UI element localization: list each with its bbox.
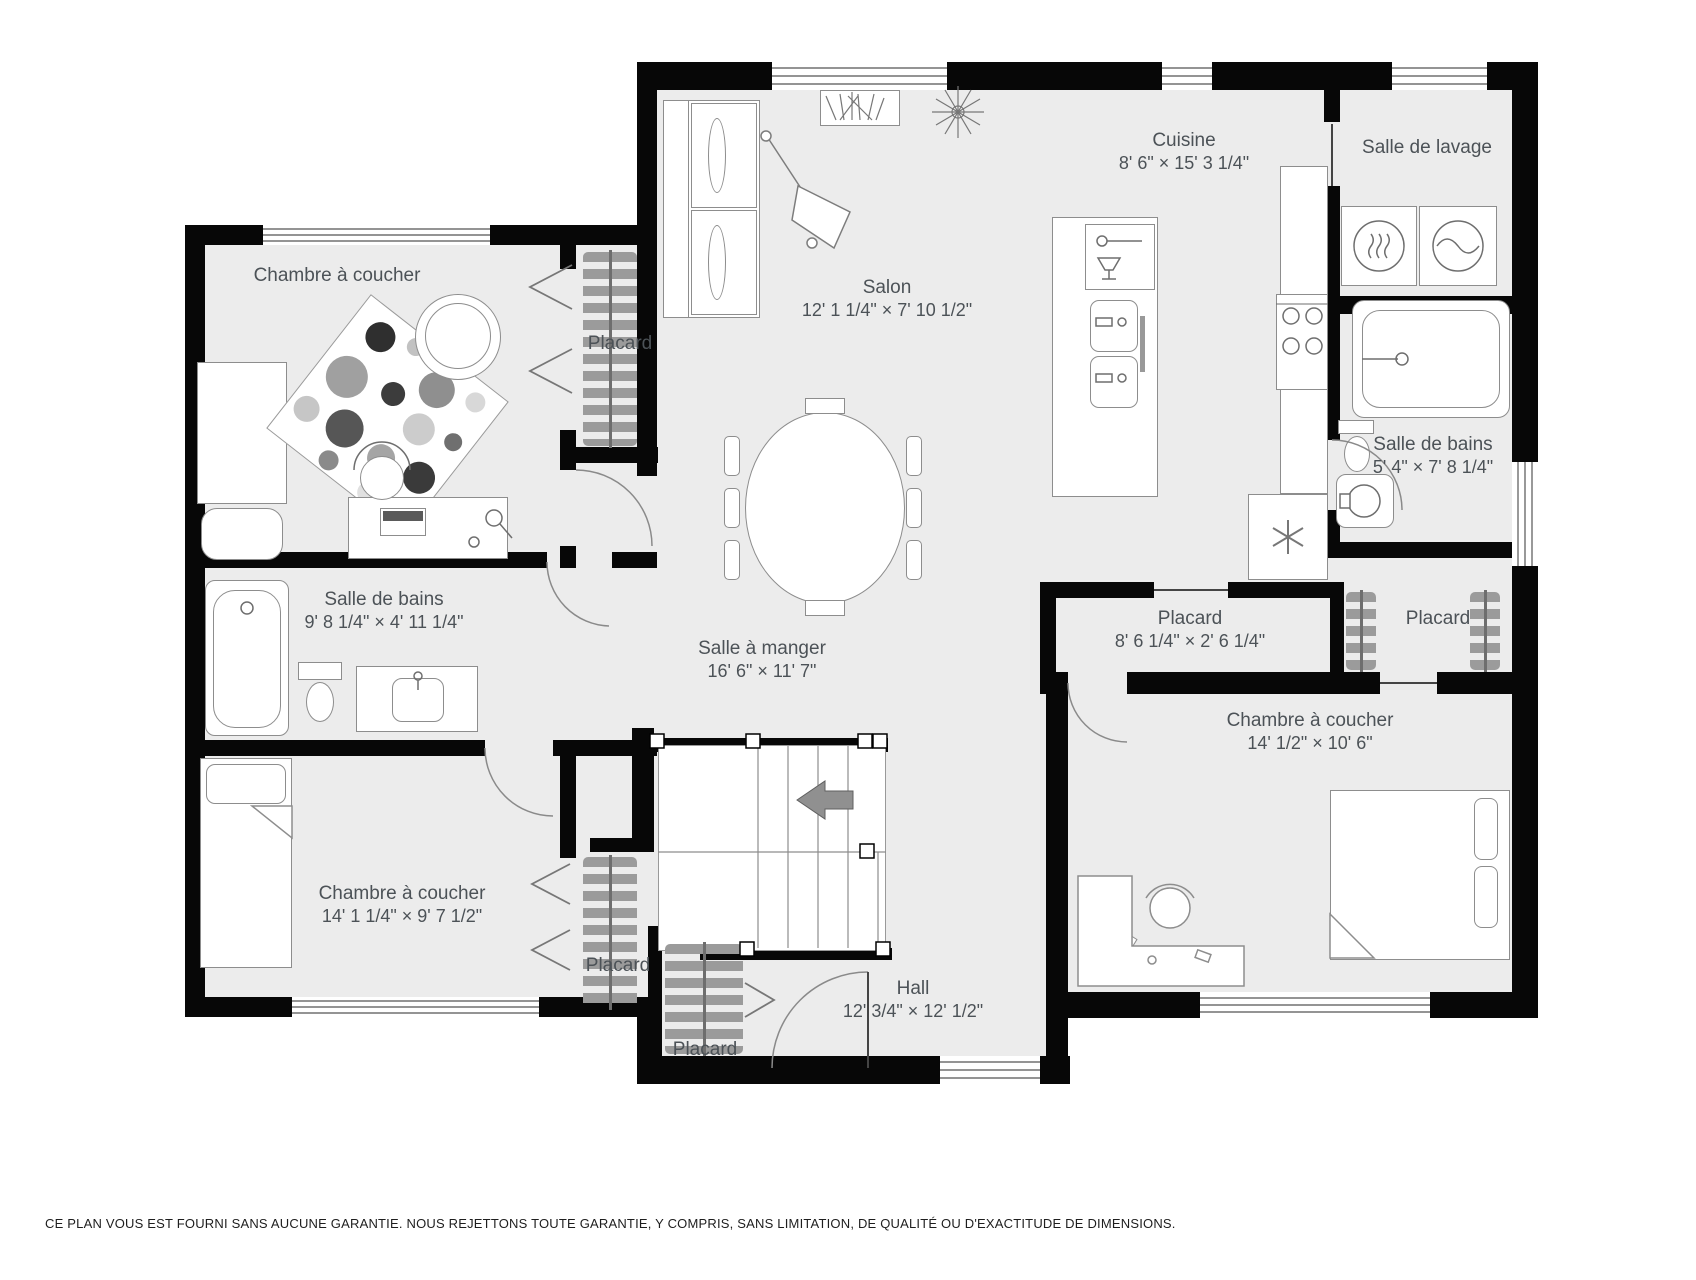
sofa-pillow	[708, 118, 726, 193]
chair-icon	[724, 488, 740, 528]
wall	[1127, 672, 1380, 694]
pedestal-sink-icon	[1336, 474, 1394, 528]
pillow	[1474, 798, 1498, 860]
stove-icon	[1276, 294, 1328, 390]
round-chair-cushion	[425, 303, 491, 369]
toilet-tank	[298, 662, 342, 680]
room-label-placard-bas-centre: Placard	[673, 1038, 737, 1061]
room-label-placard-bas-gauche: Placard	[586, 954, 650, 977]
dishwasher-icon	[1085, 224, 1155, 290]
table-pedestal	[805, 600, 845, 616]
sofa-pillow	[708, 225, 726, 300]
closet-rod-icon	[1343, 590, 1379, 672]
pillow	[1474, 866, 1498, 928]
room-label-chambre-1: Chambre à coucher	[254, 264, 421, 287]
fridge-icon	[1248, 494, 1328, 580]
wall	[560, 546, 576, 568]
sink-basin	[1090, 300, 1138, 352]
wall	[1324, 90, 1340, 122]
dryer-icon	[1341, 206, 1417, 286]
table-pedestal	[805, 398, 845, 414]
room-label-salle-de-lavage: Salle de lavage	[1362, 136, 1492, 159]
pillow	[206, 764, 286, 804]
desk-icon	[348, 497, 508, 559]
wall	[632, 728, 654, 840]
washer-icon	[1419, 206, 1497, 286]
dining-table-icon	[745, 412, 905, 604]
chair-icon	[906, 540, 922, 580]
disclaimer-text: CE PLAN VOUS EST FOURNI SANS AUCUNE GARA…	[45, 1216, 1176, 1231]
wall	[612, 552, 657, 568]
wall	[1040, 582, 1154, 598]
wall	[1330, 582, 1344, 672]
wall	[1046, 672, 1068, 1084]
wall	[1048, 992, 1538, 1018]
room-label-cuisine: Cuisine8' 6" × 15' 3 1/4"	[1119, 129, 1249, 175]
closet-rod-icon	[580, 855, 640, 1010]
bench-icon	[201, 508, 283, 560]
room-label-salon: Salon12' 1 1/4" × 7' 10 1/2"	[802, 276, 972, 322]
wall	[590, 838, 654, 852]
toilet-icon	[306, 682, 334, 722]
wall	[185, 225, 657, 245]
stool-icon	[360, 456, 404, 500]
room-label-placard-milieu: Placard8' 6 1/4" × 2' 6 1/4"	[1115, 607, 1265, 653]
chair-icon	[724, 540, 740, 580]
closet-rod-icon	[1467, 590, 1503, 672]
wall	[1228, 582, 1338, 598]
room-label-placard-top: Placard	[588, 332, 652, 355]
sink-basin	[1090, 356, 1138, 408]
room-label-chambre-2: Chambre à coucher14' 1/2" × 10' 6"	[1227, 709, 1394, 755]
sink-icon	[392, 678, 444, 722]
stairs	[658, 745, 886, 951]
room-label-placard-droit: Placard	[1406, 607, 1470, 630]
wall	[1512, 62, 1538, 1018]
wall	[185, 740, 485, 756]
laptop-keyboard	[383, 511, 423, 521]
planter-icon	[820, 90, 900, 126]
wall	[1437, 672, 1538, 694]
toilet-tank	[1338, 420, 1374, 434]
room-label-hall: Hall12' 3/4" × 12' 1/2"	[843, 977, 983, 1023]
toilet-icon	[1344, 436, 1370, 472]
chair-icon	[906, 488, 922, 528]
chair-icon	[724, 436, 740, 476]
wall	[640, 62, 1538, 90]
floor-plan: Chambre à coucher Placard Salon12' 1 1/4…	[0, 0, 1696, 1280]
wall	[560, 740, 576, 858]
room-label-chambre-3: Chambre à coucher14' 1 1/4" × 9' 7 1/2"	[319, 882, 486, 928]
chair-icon	[906, 436, 922, 476]
wall	[560, 245, 576, 269]
room-label-salle-a-manger: Salle à manger16' 6" × 11' 7"	[698, 637, 826, 683]
wall	[560, 447, 658, 463]
room-label-salle-de-bains-droite: Salle de bains5' 4" × 7' 8 1/4"	[1373, 433, 1493, 479]
room-label-salle-de-bains-gauche: Salle de bains9' 8 1/4" × 4' 11 1/4"	[305, 588, 464, 634]
wall	[1324, 542, 1538, 558]
wall	[637, 62, 657, 476]
bathtub-basin	[213, 590, 281, 728]
sofa-back	[663, 100, 689, 318]
bathtub-basin	[1362, 310, 1500, 408]
